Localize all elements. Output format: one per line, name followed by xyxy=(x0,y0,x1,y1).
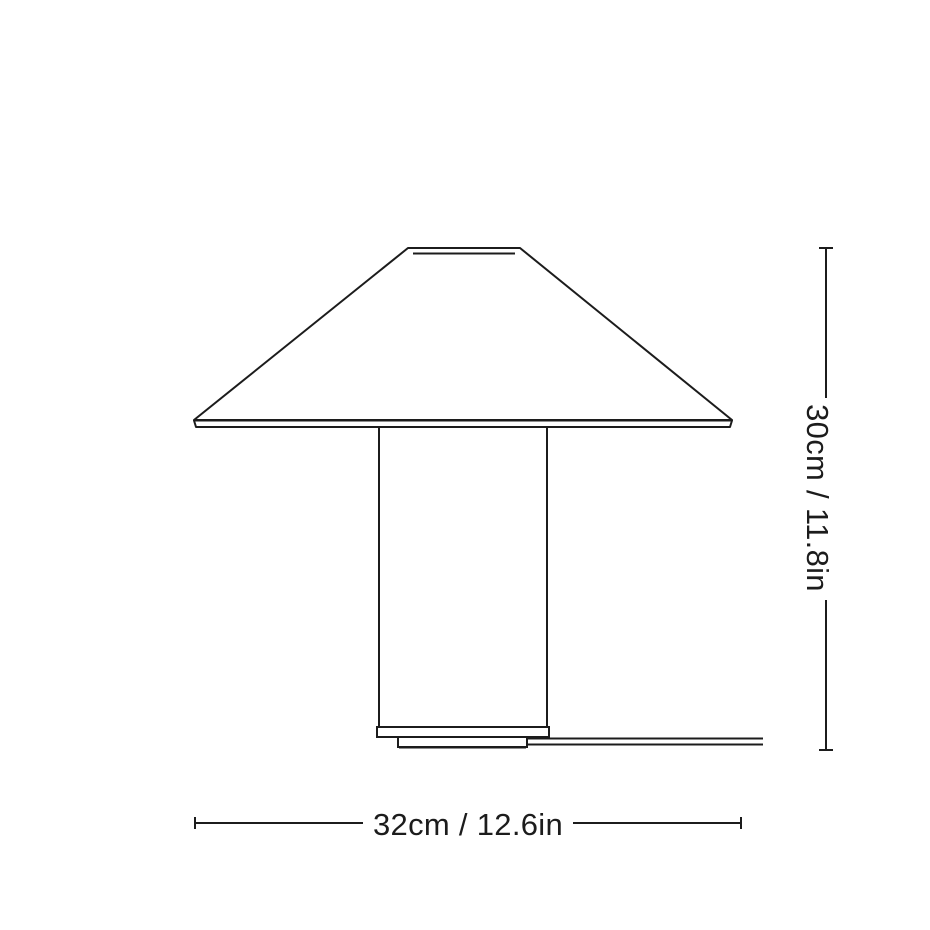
lamp-stem xyxy=(379,427,547,727)
lamp-shade-body xyxy=(194,248,732,420)
width-dimension-label: 32cm / 12.6in xyxy=(373,807,563,843)
height-dimension-label: 30cm / 11.8in xyxy=(799,404,835,592)
lamp-shade-bottom-rim xyxy=(194,421,732,428)
lamp-foot xyxy=(398,737,527,747)
product-dimension-diagram: 30cm / 11.8in 32cm / 12.6in xyxy=(0,0,930,930)
lamp-line-drawing xyxy=(0,0,930,930)
lamp-base-plate xyxy=(377,727,549,737)
